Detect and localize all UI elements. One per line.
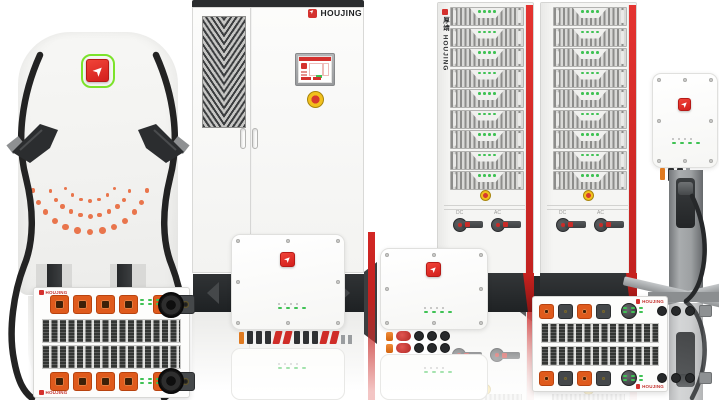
status-led	[148, 382, 152, 384]
arrow-icon: ➤	[428, 264, 438, 274]
connector-sq-orange	[73, 295, 92, 314]
status-led	[631, 311, 635, 313]
status-led	[440, 371, 444, 373]
status-led	[623, 311, 627, 313]
status-led	[286, 367, 290, 369]
status-led	[623, 375, 627, 377]
connector-disc	[427, 343, 437, 353]
status-led	[296, 363, 298, 365]
screw	[385, 253, 389, 257]
product-showcase: ➤ HOUJI	[0, 0, 719, 400]
connector-sq-orange	[539, 371, 554, 386]
status-led	[140, 382, 144, 384]
cooling-fan	[158, 292, 184, 318]
status-led	[639, 375, 643, 377]
status-led	[430, 367, 432, 369]
status-led	[432, 371, 436, 373]
connector-disc	[671, 373, 681, 383]
status-led-grid	[424, 365, 452, 375]
status-led	[278, 307, 282, 309]
screw	[286, 239, 290, 243]
screw	[709, 119, 713, 123]
connector-cyl-orange	[386, 344, 393, 353]
screw	[385, 321, 389, 325]
cooling-fan	[158, 368, 184, 394]
connector-sq-orange	[73, 372, 92, 391]
connector-disc	[414, 331, 424, 341]
connector-cyl-orange	[386, 332, 393, 341]
status-led	[290, 363, 292, 365]
status-led	[623, 379, 627, 381]
connector-bar	[303, 331, 309, 344]
terminal-row	[386, 331, 450, 341]
status-led	[442, 367, 444, 369]
connector-sq-orange	[50, 372, 69, 391]
brand-logo-icon: ➤	[426, 262, 441, 277]
status-led	[680, 142, 684, 144]
power-module-rack-right: HOUJING HOUJING	[532, 296, 668, 392]
inverter-wallbox-large: ➤	[231, 234, 345, 330]
status-led	[690, 138, 692, 140]
brand-tag: HOUJING	[636, 384, 664, 389]
connector-bar	[265, 331, 271, 344]
connector-disc-red	[396, 331, 411, 341]
connector-bar-red	[329, 331, 339, 344]
screw	[336, 280, 340, 284]
brand-name: HOUJING	[46, 390, 68, 395]
status-led	[286, 307, 290, 309]
status-led	[639, 379, 643, 381]
screw-set	[653, 74, 717, 167]
status-led	[631, 375, 635, 377]
brand-logo-icon	[636, 384, 641, 389]
connector-disc-red	[396, 343, 411, 353]
status-led	[623, 307, 627, 309]
status-led	[424, 311, 428, 313]
status-led	[302, 307, 306, 309]
power-module-rack-left: HOUJING HOUJING	[33, 287, 190, 398]
connector-disc	[414, 343, 424, 353]
screw	[432, 253, 436, 257]
connector-sq-orange	[96, 295, 115, 314]
status-led	[430, 307, 432, 309]
screw	[657, 119, 661, 123]
screw	[709, 78, 713, 82]
wallbox-reflection	[231, 348, 345, 400]
connector-sq-orange	[577, 371, 592, 386]
status-led	[140, 303, 144, 305]
brand-logo-icon	[39, 390, 44, 395]
status-led	[440, 311, 444, 313]
arrow-icon: ➤	[282, 254, 292, 264]
connector-bar	[312, 331, 318, 344]
status-led-grid	[623, 305, 643, 315]
connector-bar	[256, 331, 262, 344]
status-led-grid	[672, 136, 700, 146]
brand-name: HOUJING	[642, 384, 664, 389]
status-led	[148, 303, 152, 305]
screw	[236, 280, 240, 284]
status-led	[296, 303, 298, 305]
screw	[236, 321, 240, 325]
connector-sq-gray	[699, 305, 712, 317]
connector-disc	[685, 373, 695, 383]
connector-disc	[440, 343, 450, 353]
arrow-icon: ➤	[679, 99, 689, 109]
connector-sq-gray	[699, 372, 712, 384]
status-led	[672, 142, 676, 144]
connector-disc	[657, 306, 667, 316]
status-led	[284, 363, 286, 365]
wall-charger-box: ➤	[652, 73, 718, 168]
status-led	[278, 363, 280, 365]
screw	[286, 321, 290, 325]
connector-nub-orange	[239, 332, 244, 344]
connector-disc	[671, 306, 681, 316]
connector-disc	[657, 373, 667, 383]
screw	[479, 321, 483, 325]
ventilation-grille	[42, 319, 181, 343]
screw	[657, 78, 661, 82]
status-led-grid	[623, 373, 643, 383]
screw	[709, 159, 713, 163]
brand-tag: HOUJING	[39, 390, 67, 395]
status-led	[684, 138, 686, 140]
status-led	[290, 303, 292, 305]
charging-gun	[678, 182, 693, 195]
connector-sq-dark	[596, 304, 611, 319]
connector-bar-red	[282, 331, 292, 344]
screw	[236, 239, 240, 243]
screw	[683, 159, 687, 163]
status-led	[424, 307, 426, 309]
screw	[683, 78, 687, 82]
status-led	[284, 303, 286, 305]
brand-logo-icon: ➤	[678, 98, 691, 111]
inverter-wallbox-small: ➤	[380, 248, 488, 330]
terminal-row	[386, 343, 450, 353]
status-led	[631, 379, 635, 381]
screw	[336, 239, 340, 243]
status-led-grid	[278, 361, 306, 371]
status-led	[639, 311, 643, 313]
terminal-rows	[386, 331, 450, 353]
connector-sq-orange	[119, 372, 138, 391]
connector-bar-red	[319, 331, 329, 344]
screw-set	[381, 249, 487, 329]
connector-nub-orange	[660, 168, 665, 180]
status-led	[432, 311, 436, 313]
terminal-row	[239, 331, 352, 344]
status-led	[672, 138, 674, 140]
screw	[479, 287, 483, 291]
connector-nub-gray	[348, 335, 352, 344]
connector-disc	[427, 331, 437, 341]
brand-logo-icon	[39, 290, 44, 295]
connector-sq-orange	[96, 372, 115, 391]
status-led	[148, 299, 152, 301]
ventilation-grille	[541, 323, 659, 343]
connector-nub-gray	[341, 335, 345, 344]
status-led	[294, 367, 298, 369]
status-led	[678, 138, 680, 140]
connector-sq-orange	[119, 295, 138, 314]
status-led	[148, 378, 152, 380]
screw	[432, 321, 436, 325]
status-led	[639, 307, 643, 309]
screw-set	[232, 235, 344, 329]
status-led	[424, 367, 426, 369]
screw	[336, 321, 340, 325]
status-led-grid	[278, 301, 306, 311]
status-led	[140, 378, 144, 380]
connector-disc	[440, 331, 450, 341]
connector-disc	[685, 306, 695, 316]
status-led	[436, 367, 438, 369]
screw	[479, 253, 483, 257]
status-led	[696, 142, 700, 144]
status-led	[631, 307, 635, 309]
connector-sq-orange	[577, 304, 592, 319]
connector-bar	[294, 331, 300, 344]
ventilation-grille	[42, 345, 181, 369]
status-led-grid	[424, 305, 452, 315]
status-led	[448, 371, 452, 373]
connector-bar-red	[272, 331, 282, 344]
connector-bar	[247, 331, 253, 344]
brand-logo-icon: ➤	[280, 252, 295, 267]
connector-sq-dark	[596, 371, 611, 386]
wallbox-reflection	[380, 354, 488, 400]
connector-sq-orange	[50, 295, 69, 314]
status-led	[302, 367, 306, 369]
status-led	[688, 142, 692, 144]
status-led	[436, 307, 438, 309]
status-led	[294, 307, 298, 309]
status-led	[278, 367, 282, 369]
connector-sq-dark	[558, 304, 573, 319]
ventilation-grille	[541, 346, 659, 366]
connector-sq-dark	[558, 371, 573, 386]
screw	[657, 159, 661, 163]
connector-sq-orange	[539, 304, 554, 319]
status-led	[140, 299, 144, 301]
status-led	[448, 311, 452, 313]
status-led	[442, 307, 444, 309]
status-led	[278, 303, 280, 305]
status-led	[424, 371, 428, 373]
screw	[385, 287, 389, 291]
